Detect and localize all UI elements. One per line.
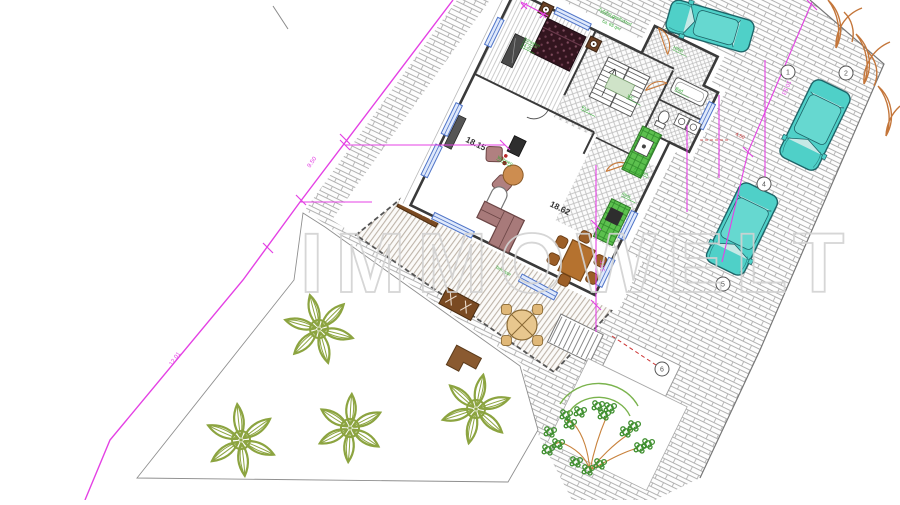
svg-text:4: 4: [762, 182, 766, 189]
svg-text:1: 1: [786, 70, 790, 77]
svg-text:6: 6: [660, 367, 664, 374]
svg-text:IMMOWELT: IMMOWELT: [300, 216, 856, 310]
svg-text:2: 2: [844, 71, 848, 78]
